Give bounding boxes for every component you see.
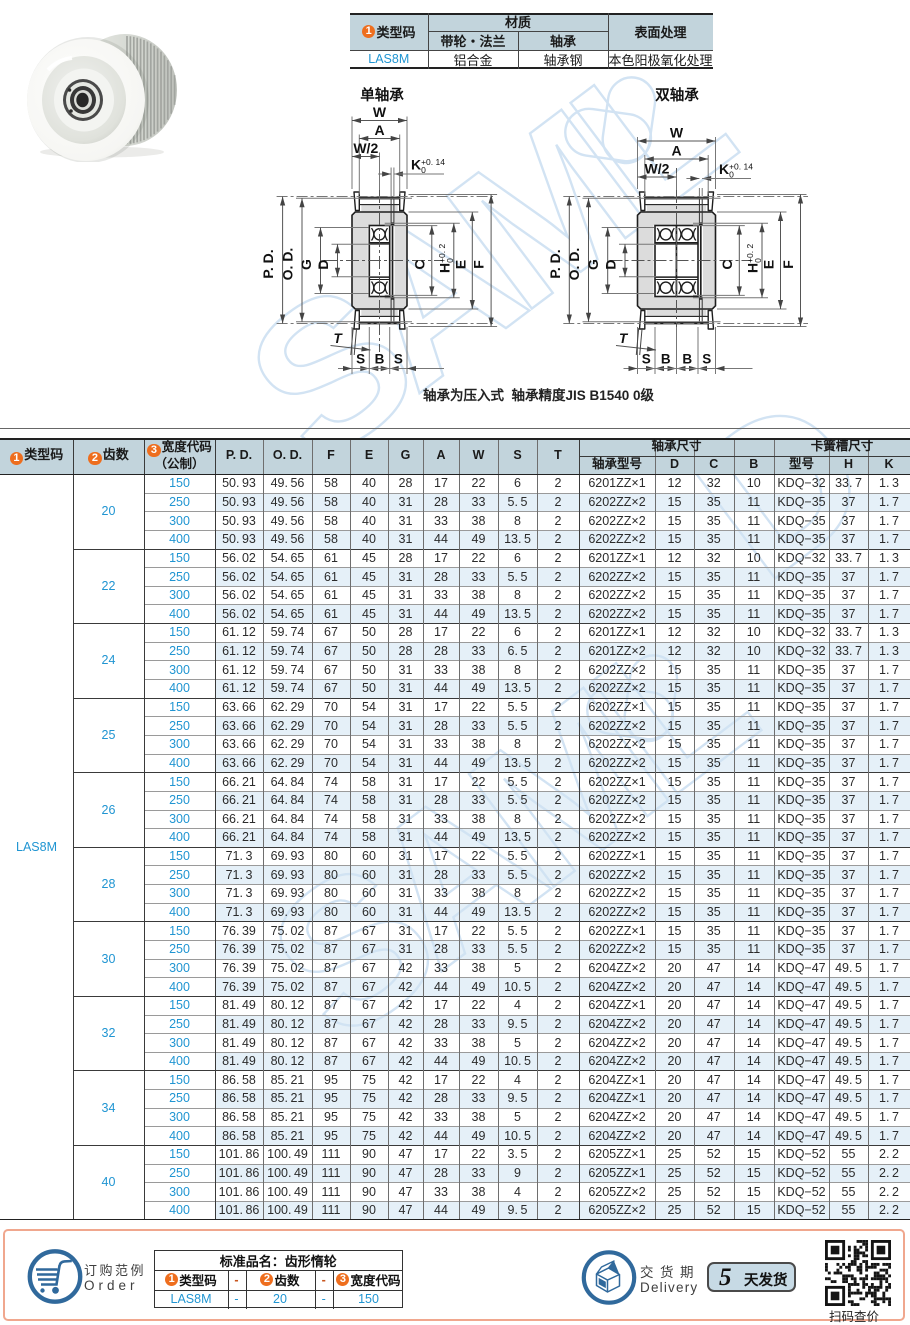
svg-text:S: S (356, 352, 365, 367)
svg-text:单轴承: 单轴承 (360, 86, 404, 104)
svg-text:P. D.: P. D. (260, 249, 276, 278)
svg-text:0: 0 (729, 170, 734, 180)
svg-text:T: T (619, 331, 629, 346)
svg-text:O. D.: O. D. (280, 248, 296, 281)
svg-text:A: A (374, 122, 384, 138)
svg-text:S: S (702, 352, 711, 367)
svg-text:O. D.: O. D. (566, 248, 582, 281)
svg-text:W: W (670, 125, 684, 141)
svg-text:A: A (671, 143, 681, 159)
svg-text:T: T (334, 331, 344, 346)
svg-text:B: B (375, 352, 385, 367)
svg-text:C: C (411, 259, 427, 269)
svg-text:0: 0 (421, 165, 426, 175)
svg-text:C: C (719, 259, 735, 269)
svg-text:B: B (682, 352, 692, 367)
svg-text:W: W (373, 104, 387, 120)
svg-text:W/2: W/2 (645, 161, 670, 177)
svg-text:K: K (719, 161, 729, 177)
svg-text:F: F (471, 260, 487, 269)
svg-text:P. D.: P. D. (547, 249, 563, 278)
svg-text:H: H (436, 263, 452, 273)
svg-text:S: S (394, 352, 403, 367)
svg-text:G: G (298, 259, 314, 270)
svg-text:B: B (661, 352, 671, 367)
svg-text:F: F (780, 260, 796, 269)
svg-text:S: S (642, 352, 651, 367)
svg-text:H: H (745, 263, 761, 273)
svg-text:W/2: W/2 (353, 140, 378, 156)
svg-text:K: K (411, 157, 421, 173)
svg-text:D: D (315, 259, 331, 269)
svg-text:E: E (761, 260, 777, 269)
svg-text:G: G (585, 259, 601, 270)
svg-text:E: E (452, 260, 468, 269)
svg-text:D: D (603, 259, 619, 269)
svg-text:双轴承: 双轴承 (655, 86, 699, 104)
